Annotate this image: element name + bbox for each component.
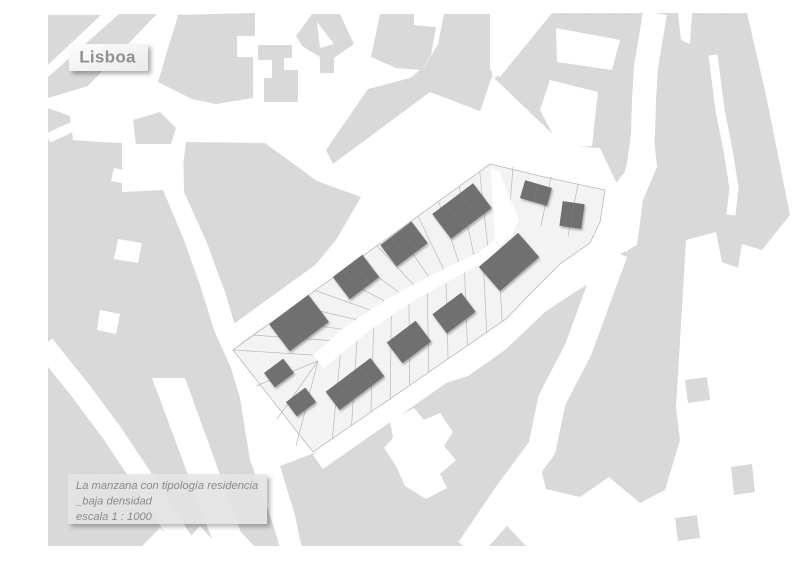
svg-text:escala 1 : 1000: escala 1 : 1000 [76, 511, 153, 523]
svg-text:Lisboa: Lisboa [79, 48, 136, 67]
svg-text:_baja densidad: _baja densidad [75, 496, 153, 508]
svg-text:La manzana con tipología resid: La manzana con tipología residencia [76, 480, 258, 492]
